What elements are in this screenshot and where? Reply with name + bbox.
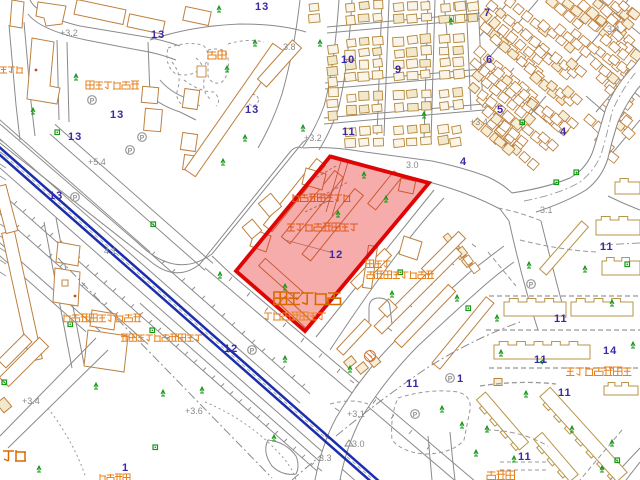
svg-text:14: 14	[603, 345, 617, 357]
svg-text:+3.1: +3.1	[347, 409, 365, 419]
svg-text:P: P	[128, 148, 133, 155]
svg-text:11: 11	[600, 241, 614, 253]
svg-text:1: 1	[457, 373, 463, 385]
svg-text:13: 13	[68, 131, 82, 143]
svg-text:P: P	[90, 98, 95, 105]
svg-text:3.0: 3.0	[406, 160, 419, 170]
svg-text:11: 11	[558, 387, 572, 399]
svg-text:+5.4: +5.4	[88, 157, 106, 167]
svg-text:12: 12	[224, 343, 238, 355]
svg-text:+3.2: +3.2	[304, 133, 322, 143]
svg-text:4: 4	[560, 126, 567, 138]
svg-text:13: 13	[49, 190, 63, 202]
svg-text:3.3: 3.3	[319, 453, 332, 463]
svg-text:3.8: 3.8	[283, 42, 296, 52]
svg-text:10: 10	[341, 54, 355, 66]
svg-text:1: 1	[122, 462, 129, 474]
svg-text:5: 5	[497, 104, 504, 116]
svg-text:+3.2: +3.2	[60, 28, 78, 38]
svg-text:P: P	[448, 376, 453, 383]
svg-text:11: 11	[518, 451, 532, 463]
svg-text:3.1: 3.1	[540, 205, 553, 215]
svg-text:3.0: 3.0	[352, 439, 365, 449]
svg-text:+3.6: +3.6	[185, 406, 203, 416]
svg-text:13: 13	[245, 104, 259, 116]
svg-text:9: 9	[395, 64, 402, 76]
svg-text:4: 4	[460, 156, 467, 168]
svg-text:13: 13	[255, 1, 269, 13]
svg-text:11: 11	[534, 354, 548, 366]
svg-text:4.1: 4.1	[104, 246, 117, 256]
svg-text:12: 12	[329, 249, 343, 261]
svg-text:+3.4: +3.4	[470, 117, 488, 127]
svg-text:P: P	[73, 195, 78, 202]
svg-text:11: 11	[342, 126, 356, 138]
svg-text:P: P	[529, 282, 534, 289]
svg-text:6: 6	[486, 54, 493, 66]
svg-text:P: P	[250, 348, 255, 355]
svg-text:3.4: 3.4	[607, 24, 620, 34]
svg-text:P: P	[140, 135, 145, 142]
svg-text:7: 7	[484, 7, 491, 19]
svg-text:13: 13	[151, 29, 165, 41]
svg-text:P: P	[413, 412, 418, 419]
svg-text:11: 11	[554, 313, 568, 325]
svg-text:13: 13	[110, 109, 124, 121]
svg-text:11: 11	[406, 378, 420, 390]
